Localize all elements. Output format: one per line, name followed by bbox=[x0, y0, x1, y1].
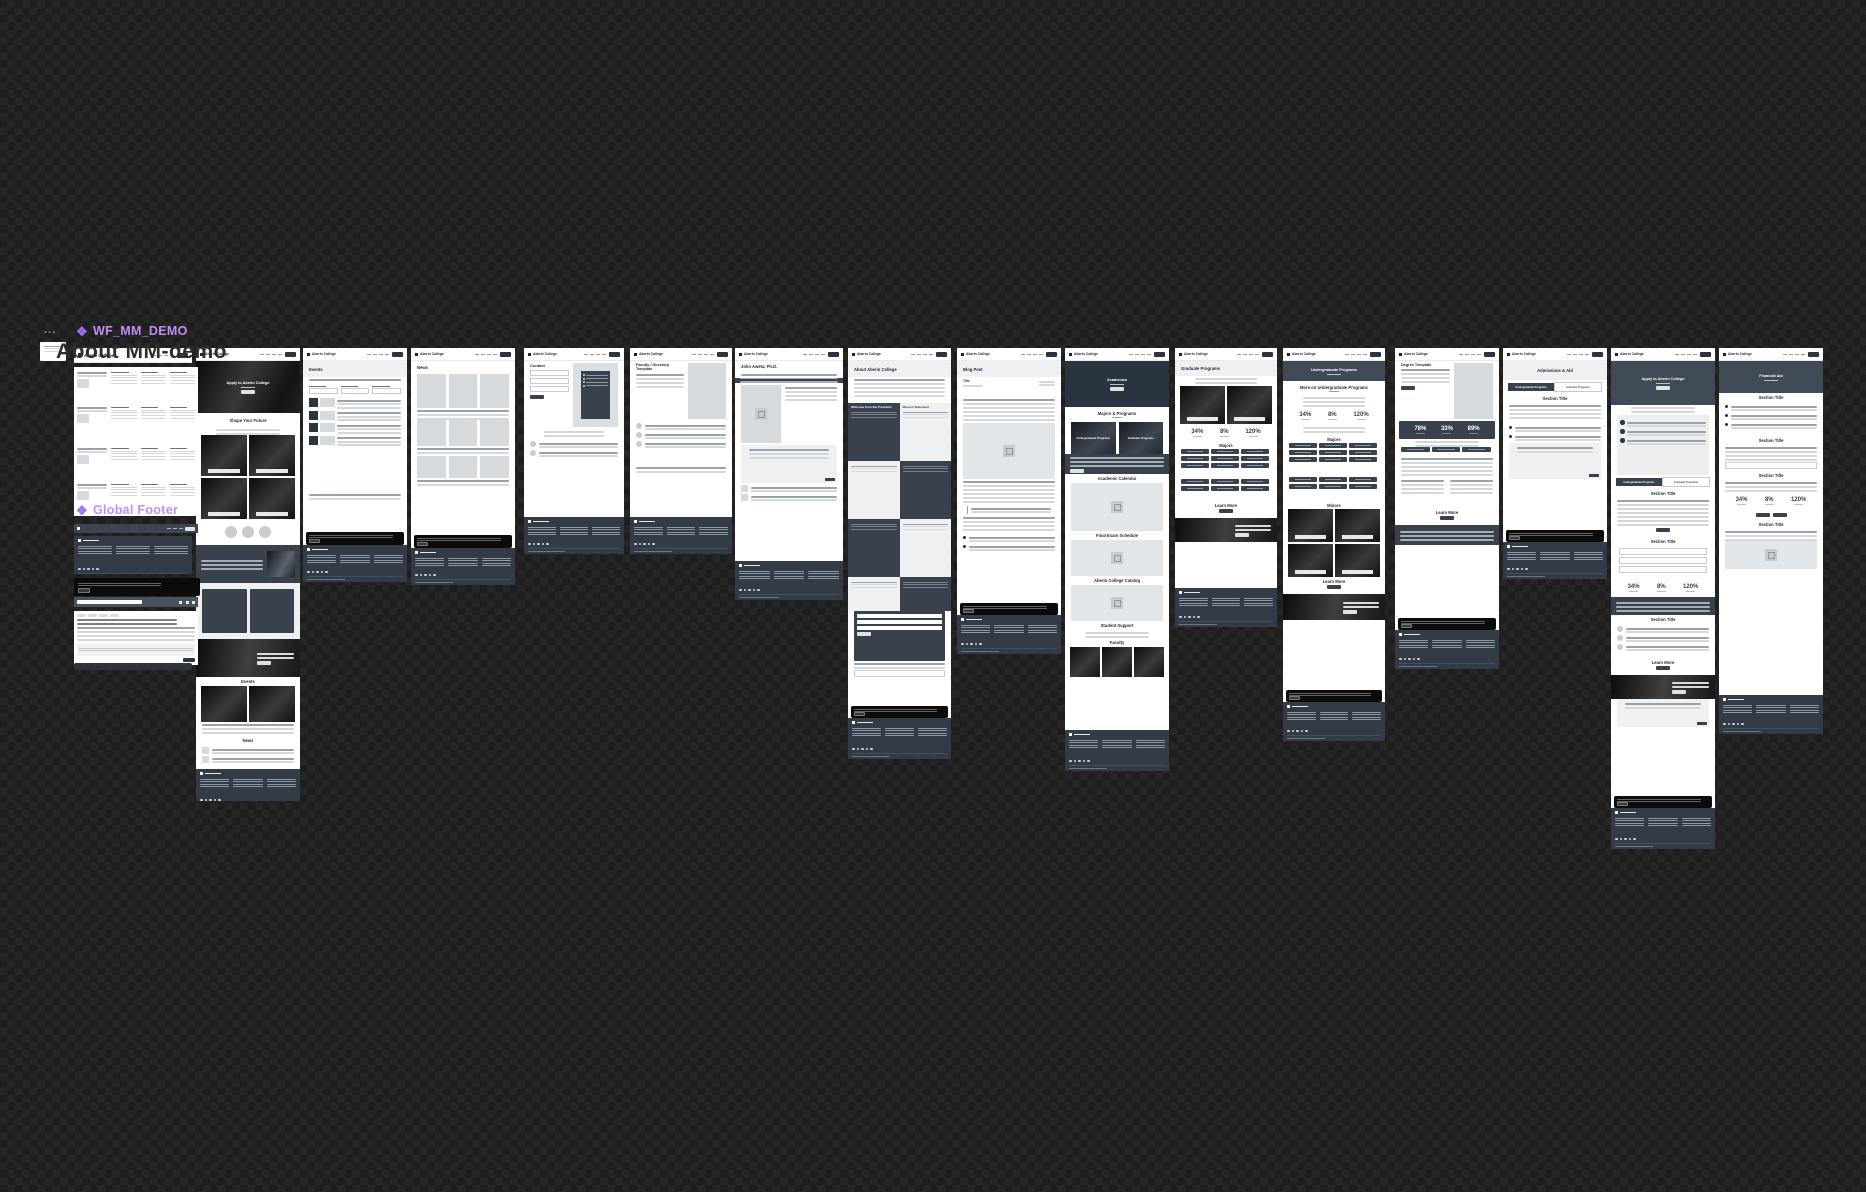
footer-column bbox=[448, 556, 477, 572]
footer-link bbox=[699, 529, 728, 530]
search-input bbox=[1725, 462, 1817, 469]
image-card bbox=[1725, 541, 1817, 569]
photo-card bbox=[1180, 386, 1225, 424]
text-line bbox=[1725, 531, 1817, 533]
section-heading: Student Support bbox=[1091, 623, 1144, 628]
footer-link bbox=[1682, 818, 1711, 819]
social-icon bbox=[1301, 730, 1304, 733]
section-head: Minors bbox=[1283, 501, 1385, 509]
meta-line bbox=[1039, 381, 1055, 383]
nav-link bbox=[1255, 354, 1259, 355]
band-text bbox=[1616, 600, 1710, 612]
text-line bbox=[77, 484, 107, 486]
footer-link bbox=[852, 730, 881, 731]
section-list bbox=[630, 421, 732, 465]
text-line bbox=[854, 663, 945, 665]
stat-label bbox=[1249, 436, 1258, 437]
component-footer-dark[interactable] bbox=[74, 536, 192, 574]
social-icons bbox=[852, 748, 947, 751]
footer-link bbox=[592, 534, 620, 535]
frame-undergraduate-programs[interactable]: Aberin CollegeUndergraduate ProgramsMore… bbox=[1283, 348, 1385, 741]
text-line bbox=[44, 351, 62, 352]
logo-mark bbox=[634, 520, 637, 523]
stat-label bbox=[1328, 419, 1337, 420]
footer-column bbox=[1756, 703, 1785, 721]
nav-link bbox=[1693, 354, 1697, 355]
component-navbar-dark[interactable] bbox=[74, 524, 198, 533]
component-label-global-footer[interactable]: ❖ Global Footer bbox=[76, 503, 178, 517]
pill-label bbox=[1217, 451, 1234, 452]
social-icon bbox=[429, 574, 432, 577]
footer-link bbox=[699, 534, 728, 535]
nav-link bbox=[1675, 354, 1679, 355]
social-icons bbox=[415, 574, 511, 577]
frame-admissions-aid[interactable]: Aberin CollegeAdmissions & AidUndergradu… bbox=[1503, 348, 1607, 579]
photo-card bbox=[1102, 647, 1132, 677]
major-pill bbox=[1401, 447, 1430, 452]
filter-field bbox=[341, 386, 370, 394]
stat: 8% bbox=[1220, 429, 1229, 437]
section-strip bbox=[1614, 796, 1712, 808]
footer-link bbox=[1507, 554, 1536, 555]
nav-link bbox=[923, 354, 927, 355]
text-line bbox=[851, 587, 897, 588]
section-photogrid bbox=[1065, 647, 1169, 677]
component-navbar-lg[interactable]: Aberin College bbox=[74, 348, 192, 363]
section-head: Learn More bbox=[1395, 508, 1499, 516]
sq-icon bbox=[202, 756, 209, 763]
frame-about[interactable]: Aberin CollegeAbout Aberin CollegeWelcom… bbox=[848, 348, 951, 759]
stat: 120% bbox=[1791, 497, 1806, 505]
social-icon bbox=[1197, 616, 1200, 619]
text-line bbox=[1617, 516, 1709, 518]
site-footer bbox=[630, 517, 732, 554]
nav-link bbox=[278, 354, 282, 355]
footer-link bbox=[1723, 705, 1752, 706]
section-pills bbox=[1175, 479, 1277, 501]
footer-link bbox=[200, 784, 229, 785]
logo-text: Aberin College bbox=[533, 352, 557, 356]
footer-link bbox=[340, 562, 369, 563]
image-icon bbox=[1111, 597, 1123, 609]
section-heading: Majors bbox=[1317, 437, 1351, 442]
section-heading: Shape Your Future bbox=[219, 418, 276, 423]
major-pill bbox=[1181, 479, 1209, 484]
footer-columns bbox=[528, 525, 620, 541]
site-footer bbox=[524, 517, 624, 554]
frame-homepage[interactable]: Aberin CollegeApply to Aberin CollegeSha… bbox=[196, 348, 300, 801]
logo-mark bbox=[415, 353, 418, 356]
navbar: Aberin College bbox=[411, 348, 515, 361]
text-line bbox=[963, 419, 1055, 421]
text-line bbox=[337, 425, 401, 427]
frame-news[interactable]: Aberin CollegeNews bbox=[411, 348, 515, 585]
media-image bbox=[1454, 363, 1493, 419]
logo-mark bbox=[1723, 353, 1726, 356]
cta-button bbox=[1773, 513, 1787, 517]
nav-link bbox=[1465, 354, 1469, 355]
section-btn bbox=[1611, 528, 1715, 537]
text-line bbox=[785, 395, 837, 397]
pill-label bbox=[1295, 452, 1312, 453]
text-line bbox=[1509, 417, 1601, 419]
component-strip-black[interactable] bbox=[74, 578, 200, 596]
logo-mark bbox=[961, 353, 964, 356]
nav-link bbox=[1141, 354, 1145, 355]
footer-link bbox=[111, 383, 136, 384]
footer-link bbox=[808, 571, 839, 572]
footer-link bbox=[1244, 598, 1273, 599]
pill-label bbox=[1187, 451, 1204, 452]
section-strip bbox=[1286, 690, 1382, 702]
footer-link bbox=[170, 377, 195, 378]
nav-link bbox=[152, 355, 156, 356]
list-text bbox=[1626, 644, 1710, 651]
text-line bbox=[636, 374, 684, 376]
text-line bbox=[337, 403, 401, 405]
footer-column bbox=[852, 726, 881, 746]
nav-link bbox=[1477, 354, 1481, 355]
footer-legal bbox=[415, 582, 453, 583]
photo-card bbox=[201, 435, 247, 476]
frame-blog-post[interactable]: Aberin CollegeBlog PostTitle bbox=[957, 348, 1061, 654]
text-line bbox=[77, 487, 107, 489]
cta-button bbox=[1656, 528, 1670, 532]
byline bbox=[963, 385, 983, 387]
footer-link bbox=[170, 487, 195, 488]
footer-link bbox=[116, 553, 150, 554]
footer-logo bbox=[307, 548, 403, 551]
footer-link bbox=[918, 730, 947, 731]
component-bar-gray[interactable] bbox=[74, 663, 192, 670]
nav-link bbox=[1363, 354, 1367, 355]
component-footer-light[interactable] bbox=[74, 402, 198, 445]
footer-link bbox=[1212, 603, 1241, 604]
footer-link bbox=[1136, 742, 1165, 743]
frame-academics[interactable]: Aberin CollegeAcademicsMajors & Programs… bbox=[1065, 348, 1169, 771]
footer-column bbox=[78, 544, 112, 566]
header-button bbox=[185, 527, 195, 531]
image-placeholder bbox=[449, 374, 478, 408]
footer-link bbox=[1028, 630, 1057, 631]
footer-link bbox=[1574, 554, 1603, 555]
stat-label bbox=[1301, 419, 1310, 420]
text-line bbox=[1731, 415, 1818, 417]
site-footer bbox=[303, 545, 407, 582]
accept-button bbox=[183, 658, 195, 662]
footer-logo bbox=[415, 551, 511, 554]
site-footer bbox=[1175, 588, 1277, 627]
footer-columns bbox=[1399, 638, 1495, 656]
stat-label bbox=[1657, 591, 1666, 592]
feature-card bbox=[250, 589, 295, 633]
nav-link bbox=[385, 354, 389, 355]
footer-link bbox=[699, 532, 728, 533]
footer-link bbox=[141, 453, 166, 454]
section-stats: 34%8%120% bbox=[1719, 492, 1823, 510]
text-line bbox=[963, 407, 1055, 409]
section-photogrid bbox=[1283, 509, 1385, 577]
event-date bbox=[309, 398, 318, 407]
footer-link bbox=[141, 410, 166, 411]
section-stats: 34%8%120% bbox=[1175, 424, 1277, 441]
stat: 78% bbox=[1414, 426, 1426, 434]
list-item bbox=[741, 494, 837, 501]
major-pill bbox=[1289, 484, 1317, 489]
social-icon bbox=[307, 571, 310, 574]
component-footer-light[interactable] bbox=[74, 443, 198, 481]
section-heading: Section Title bbox=[1533, 396, 1578, 401]
text-line bbox=[1631, 411, 1695, 413]
section-head: Section Title bbox=[1719, 471, 1823, 480]
pill-label bbox=[1187, 488, 1204, 489]
footer-link bbox=[1756, 710, 1785, 711]
footer-link bbox=[739, 571, 770, 572]
component-navbar-gray[interactable] bbox=[74, 597, 198, 607]
text-line bbox=[1400, 539, 1494, 541]
text-line bbox=[645, 446, 727, 448]
photoband-text bbox=[257, 651, 294, 665]
section-gap bbox=[303, 500, 407, 532]
major-pill bbox=[1211, 463, 1239, 468]
text-line bbox=[1626, 640, 1710, 642]
footer-link bbox=[1212, 605, 1241, 606]
text-line bbox=[903, 582, 949, 583]
form-input bbox=[530, 370, 569, 376]
text-line bbox=[337, 437, 401, 439]
cta-button bbox=[1656, 666, 1670, 670]
text-line bbox=[201, 564, 263, 566]
frame-faculty-profile[interactable]: Aberin CollegeJohn Aweta, Ph.D. bbox=[735, 348, 843, 600]
section-heading: Events bbox=[231, 679, 265, 684]
footer-link bbox=[1648, 825, 1677, 826]
social-icon bbox=[537, 543, 540, 546]
photoband-button bbox=[257, 661, 271, 665]
nav-link bbox=[809, 354, 813, 355]
media-button bbox=[1401, 386, 1415, 390]
component-footer-light[interactable] bbox=[74, 367, 198, 403]
section-graycard bbox=[1719, 541, 1823, 569]
circle-icon bbox=[636, 432, 642, 438]
image-placeholder bbox=[417, 374, 446, 408]
frame-degree-template[interactable]: Aberin CollegeDegree Template78%33%89%Le… bbox=[1395, 348, 1499, 669]
text-line bbox=[337, 444, 401, 446]
footer-legal bbox=[1507, 576, 1545, 577]
section-heading: John Aweta, Ph.D. bbox=[735, 364, 843, 369]
frame-faculty-directory[interactable]: Aberin CollegeFaculty / Directory Templa… bbox=[630, 348, 732, 554]
social-icon bbox=[961, 643, 964, 646]
list-item bbox=[1509, 425, 1601, 432]
image-icon-inner bbox=[1006, 448, 1013, 455]
footer-link-col bbox=[111, 446, 136, 478]
text-line bbox=[903, 526, 949, 527]
footer-link bbox=[111, 412, 136, 413]
social-icon bbox=[424, 574, 427, 577]
stat: 33% bbox=[1441, 426, 1453, 434]
media-text bbox=[785, 385, 837, 443]
social-icons bbox=[78, 568, 188, 571]
logo-mark bbox=[1287, 353, 1290, 356]
footer-link bbox=[111, 456, 136, 457]
social-icon bbox=[542, 543, 545, 546]
footer-link bbox=[1212, 600, 1241, 601]
component-label-wf-mm-demo[interactable]: ❖ WF_MM_DEMO bbox=[76, 324, 188, 338]
social-icon bbox=[321, 571, 324, 574]
footer-logo bbox=[961, 618, 1057, 621]
text-line bbox=[785, 387, 837, 389]
band-text bbox=[201, 558, 263, 570]
section-heading: More on Undergraduate Programs bbox=[1290, 385, 1378, 390]
footer-link bbox=[1069, 740, 1098, 741]
component-mini[interactable] bbox=[40, 342, 66, 361]
footer-link bbox=[340, 557, 369, 558]
image-icon bbox=[1111, 552, 1123, 564]
text-line bbox=[1401, 621, 1485, 622]
text-line bbox=[1725, 455, 1817, 457]
text-line bbox=[77, 448, 107, 450]
footer-link bbox=[170, 407, 188, 408]
logo-text: Aberin College bbox=[420, 352, 444, 356]
social-icon bbox=[1633, 838, 1636, 841]
frame-contact[interactable]: Aberin CollegeContact bbox=[524, 348, 624, 554]
footer-link bbox=[141, 451, 166, 452]
section-bars bbox=[630, 465, 732, 473]
text-line bbox=[636, 382, 684, 384]
footer-link bbox=[1723, 707, 1752, 708]
logo-mark bbox=[77, 527, 80, 530]
footer-link-col bbox=[141, 446, 166, 478]
footer-link bbox=[1244, 600, 1273, 601]
text-line bbox=[417, 448, 509, 450]
text-line bbox=[1731, 424, 1818, 426]
section-bars bbox=[1283, 395, 1385, 407]
component-diamond-icon: ❖ bbox=[76, 325, 88, 338]
social-icon bbox=[739, 589, 742, 592]
footer-link bbox=[307, 557, 336, 558]
text-line bbox=[963, 525, 1055, 527]
footer-link bbox=[774, 573, 805, 574]
text-line bbox=[1617, 799, 1701, 800]
text-line bbox=[741, 374, 837, 376]
tab-undergraduate: Undergraduate Programs bbox=[1616, 478, 1662, 486]
logo-text: Aberin College bbox=[84, 353, 114, 358]
text-line bbox=[1617, 801, 1701, 802]
frame-label-dots[interactable]: ... bbox=[44, 324, 56, 336]
text-line bbox=[636, 386, 684, 388]
text-line bbox=[851, 471, 897, 472]
logo-text: Aberin College bbox=[1404, 352, 1428, 356]
footer-link bbox=[482, 563, 511, 564]
image-placeholder bbox=[77, 379, 89, 388]
social-icon bbox=[1292, 730, 1295, 733]
nav-link bbox=[1237, 354, 1241, 355]
numbered-item bbox=[1620, 438, 1706, 445]
event-text bbox=[337, 411, 401, 422]
footer-divider bbox=[415, 579, 511, 580]
footer-divider bbox=[852, 753, 947, 754]
logo-mark bbox=[1723, 698, 1726, 701]
text-line bbox=[77, 407, 107, 409]
footer-link bbox=[1723, 712, 1752, 713]
text-line bbox=[1195, 378, 1257, 380]
component-panel-white[interactable] bbox=[74, 611, 198, 665]
footer-link bbox=[111, 495, 136, 496]
footer-link bbox=[667, 534, 696, 535]
tab-graduate: Graduate Programs bbox=[1554, 382, 1602, 392]
major-pill bbox=[1289, 450, 1317, 455]
text-line bbox=[1627, 425, 1706, 427]
site-footer bbox=[1611, 808, 1715, 849]
section-head: Graduate Programs bbox=[1175, 361, 1277, 376]
nav-link bbox=[1783, 354, 1787, 355]
footer-link bbox=[267, 786, 296, 787]
footer-link bbox=[1352, 717, 1381, 718]
image-placeholder bbox=[77, 455, 89, 464]
photoband-button bbox=[1343, 610, 1357, 614]
text-line bbox=[969, 540, 1056, 542]
footer-link bbox=[415, 563, 444, 564]
text-line bbox=[1617, 504, 1709, 506]
text-line bbox=[1626, 637, 1710, 639]
filter-field bbox=[309, 386, 338, 394]
apply-button bbox=[936, 352, 947, 357]
frame-apply[interactable]: Aberin CollegeApply to Aberin CollegeUnd… bbox=[1611, 348, 1715, 849]
footer-link bbox=[170, 410, 195, 411]
frame-events[interactable]: Aberin CollegeEvents bbox=[303, 348, 407, 582]
strip-button bbox=[1509, 536, 1520, 540]
logo-text: Aberin College bbox=[1512, 352, 1536, 356]
text-line bbox=[1627, 431, 1706, 433]
image-placeholder bbox=[417, 456, 446, 478]
footer-link bbox=[1682, 825, 1711, 826]
footer-link bbox=[307, 555, 336, 556]
image-placeholder bbox=[480, 456, 509, 478]
inner-panel bbox=[77, 644, 195, 656]
footer-divider bbox=[1615, 843, 1711, 844]
nav-link bbox=[173, 528, 177, 529]
apply-button bbox=[828, 352, 839, 357]
section-graycards bbox=[196, 583, 300, 639]
section-media bbox=[735, 383, 843, 445]
footer-legal bbox=[1399, 666, 1437, 667]
list-text bbox=[1627, 438, 1706, 445]
section-heading: Academic Calendar bbox=[1088, 476, 1147, 481]
section-gap bbox=[1395, 545, 1499, 618]
text-line bbox=[963, 497, 1055, 499]
text-line bbox=[1401, 377, 1450, 379]
section-gap bbox=[735, 505, 843, 561]
section-pills bbox=[1283, 477, 1385, 501]
text-line bbox=[1515, 430, 1602, 432]
photo-card bbox=[249, 478, 295, 519]
numbered-item bbox=[1620, 429, 1706, 436]
logo-text: Aberin College bbox=[1728, 352, 1752, 356]
footer-link bbox=[141, 448, 159, 449]
list-item bbox=[963, 535, 1055, 542]
major-pill bbox=[1349, 484, 1377, 489]
footer-link bbox=[1540, 559, 1569, 560]
apply-button bbox=[1700, 352, 1711, 357]
footer-link bbox=[1466, 645, 1495, 646]
stat-value: 120% bbox=[1245, 429, 1260, 435]
section-heading: News bbox=[233, 738, 264, 743]
footer-link-col bbox=[111, 405, 136, 442]
frame-graduate-programs[interactable]: Aberin CollegeGraduate Programs34%8%120%… bbox=[1175, 348, 1277, 627]
frame-financial-aid[interactable]: Aberin CollegeFinancial AidSection Title… bbox=[1719, 348, 1823, 734]
logo-mark bbox=[739, 353, 742, 356]
circle-icon bbox=[1617, 644, 1623, 650]
text-line bbox=[1617, 508, 1709, 510]
